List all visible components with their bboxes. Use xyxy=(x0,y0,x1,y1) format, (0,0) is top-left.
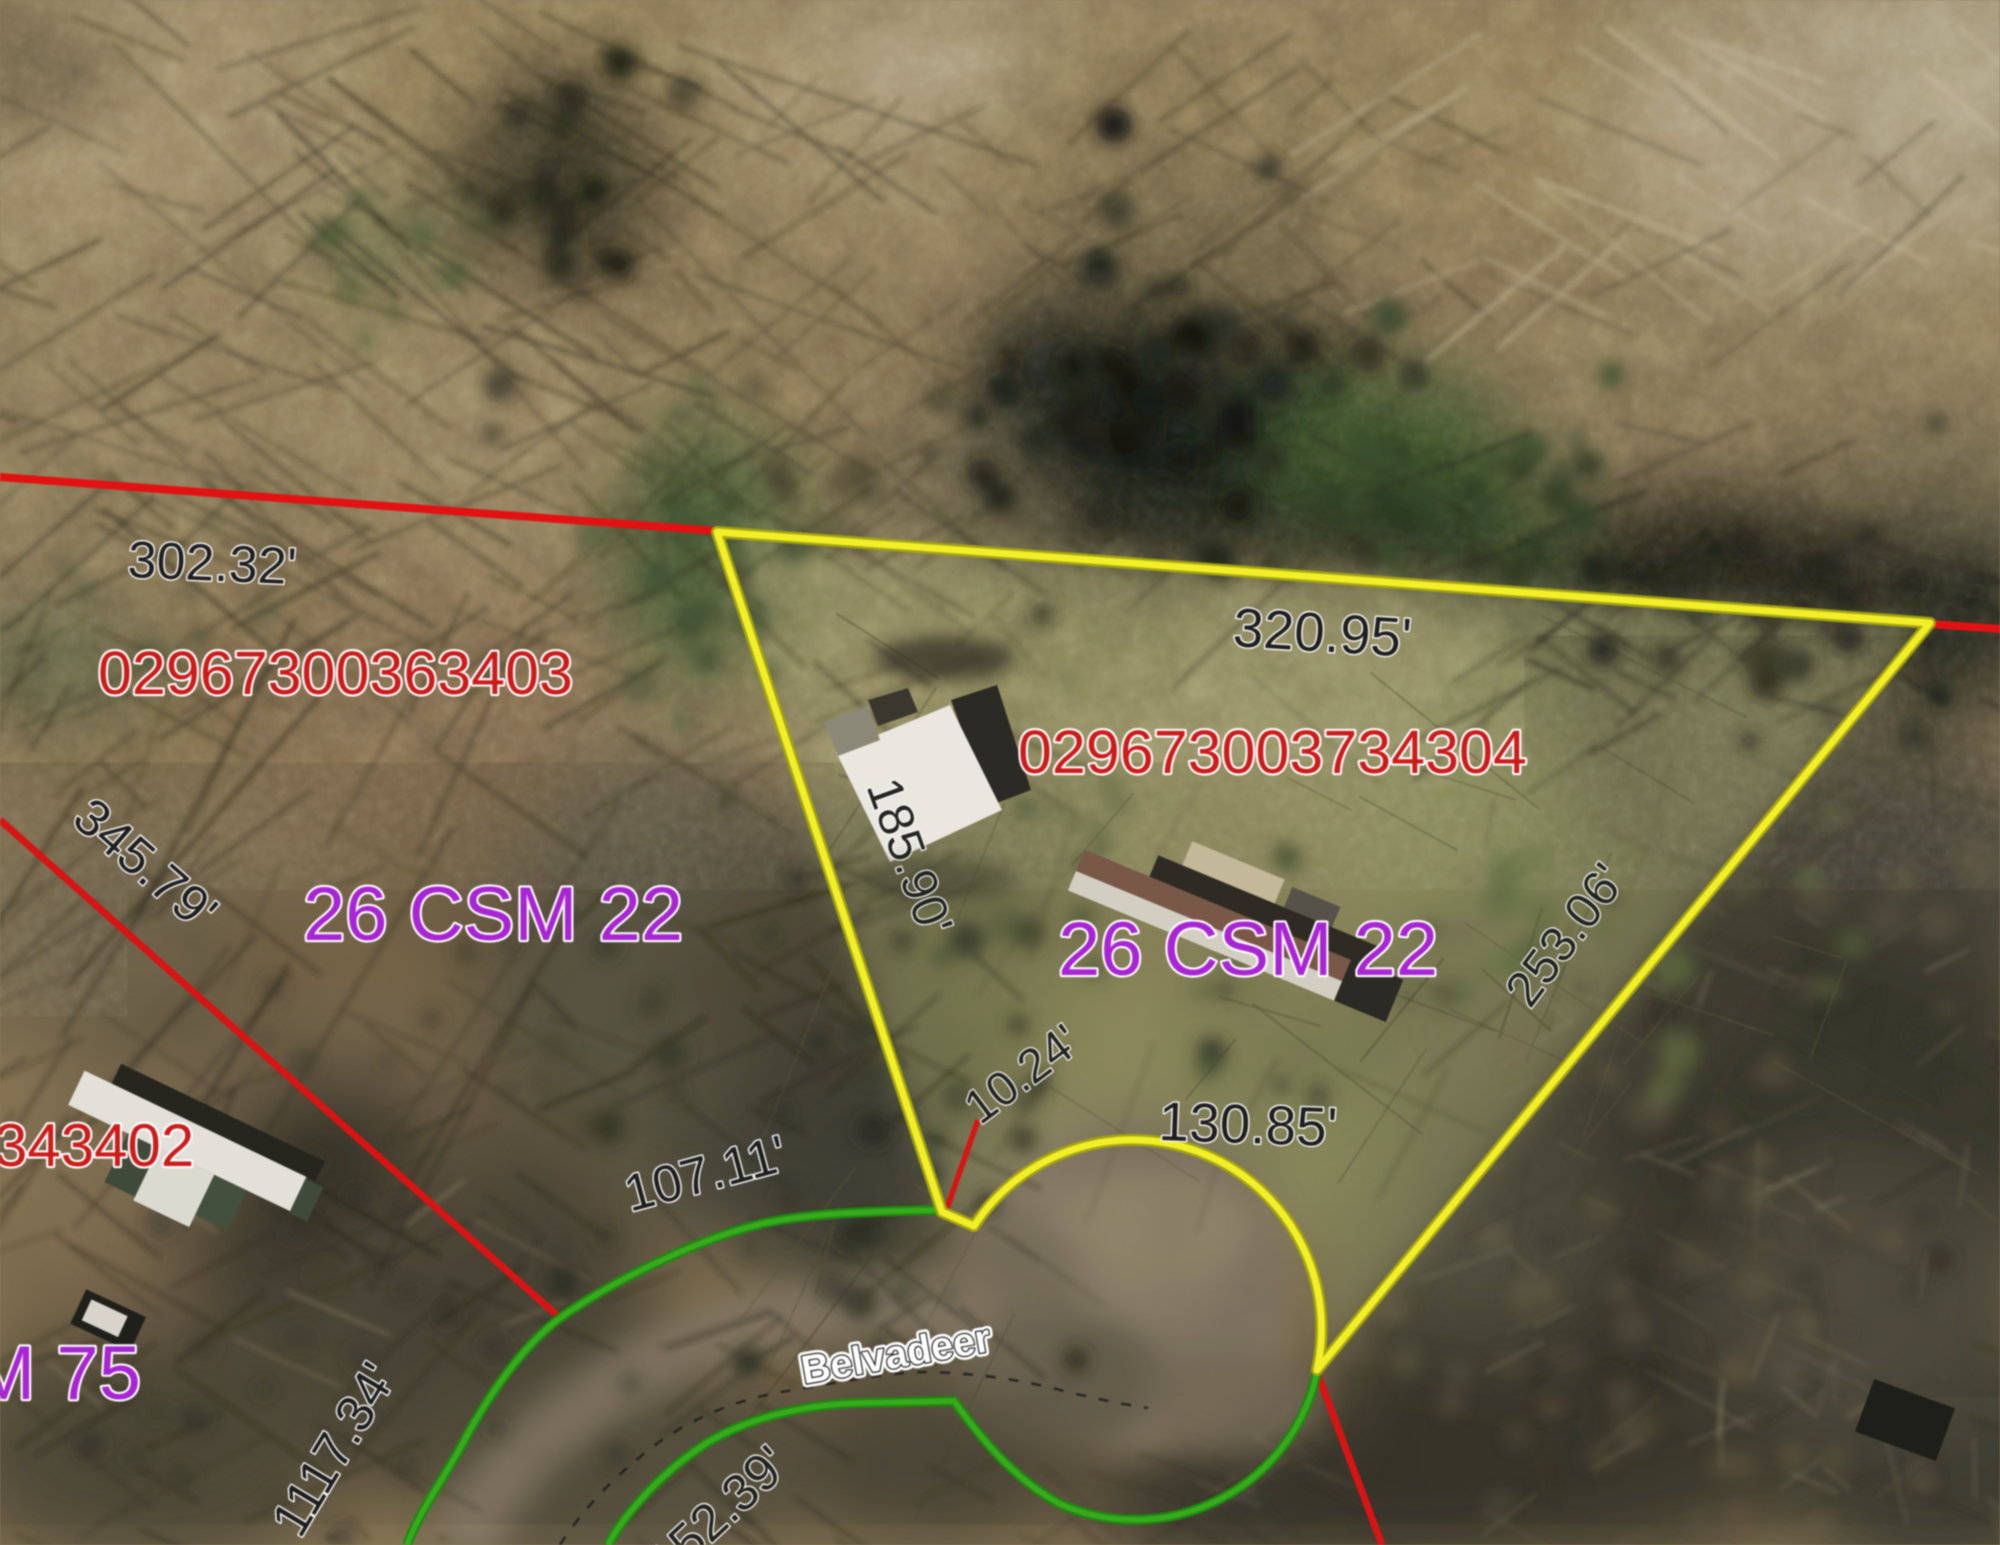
svg-text:130.85': 130.85' xyxy=(1158,1090,1339,1158)
svg-text:343402: 343402 xyxy=(0,1112,194,1179)
svg-text:26 CSM 22: 26 CSM 22 xyxy=(303,872,683,957)
svg-text:26 CSM 22: 26 CSM 22 xyxy=(1058,907,1438,992)
svg-text:M 75: M 75 xyxy=(0,1331,141,1416)
svg-text:302.32': 302.32' xyxy=(126,531,297,596)
svg-text:02967300363403: 02967300363403 xyxy=(98,639,573,707)
svg-text:320.95': 320.95' xyxy=(1231,596,1413,669)
svg-text:029673003734304: 029673003734304 xyxy=(1018,718,1527,786)
